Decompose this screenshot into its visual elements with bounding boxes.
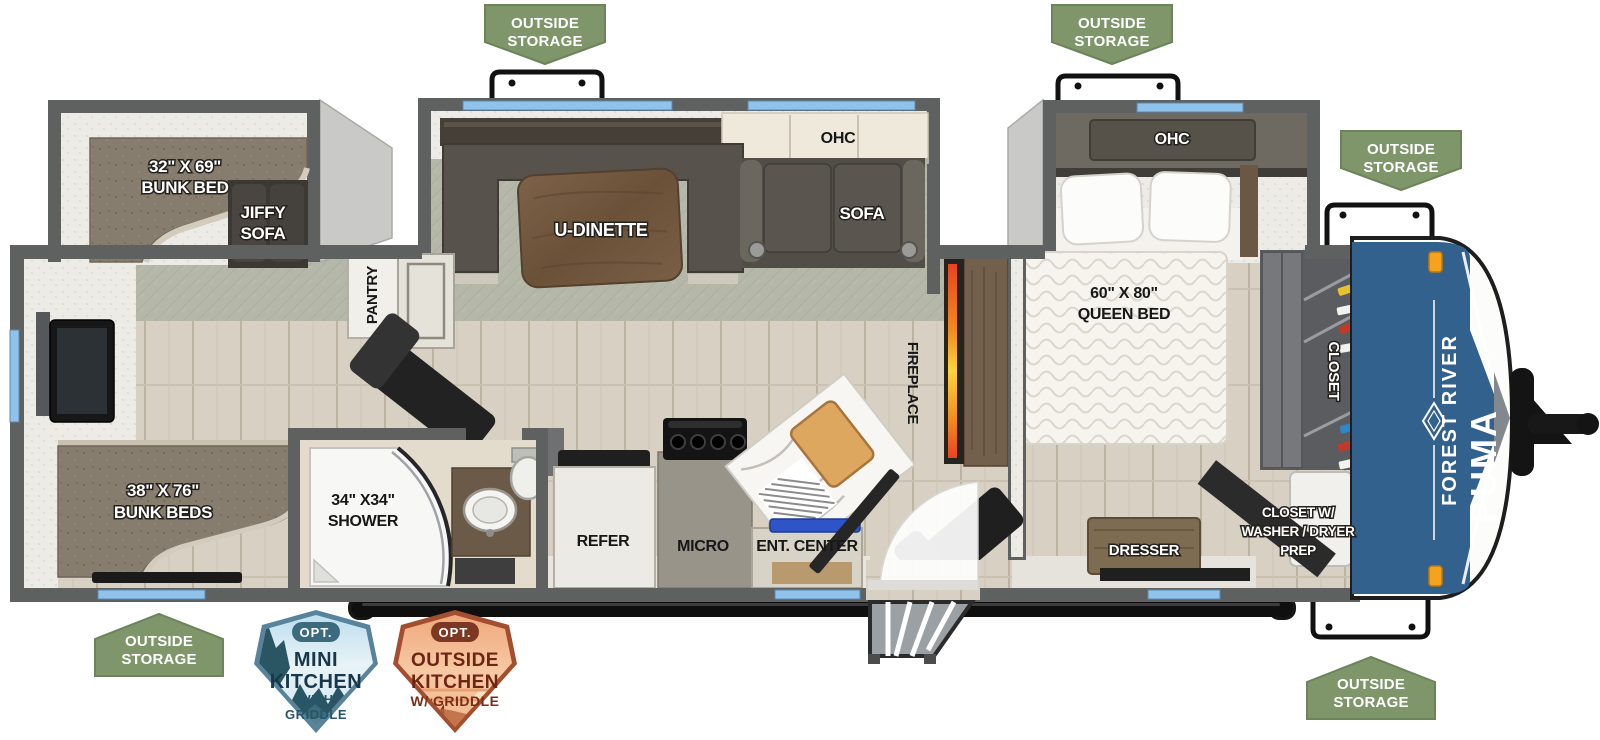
sofa-label: SOFA [839, 204, 884, 223]
queen-bed [1010, 252, 1227, 444]
micro-label: MICRO [677, 538, 729, 555]
pantry-label: PANTRY [364, 266, 381, 324]
fireplace-unit [944, 256, 1008, 466]
bed-side-wardrobe [1240, 165, 1258, 257]
ohc-dinette-label: OHC [821, 130, 856, 147]
model-label: PUMA [1463, 409, 1504, 523]
ohc-bedroom-label: OHC [1155, 131, 1190, 148]
storage-door-bracket-top-right [1058, 76, 1178, 104]
ent-center-label: ENT. CENTER [756, 538, 858, 555]
washer-dryer-label: PREP [1280, 543, 1316, 558]
storage-door-bracket-bottom-right [1313, 596, 1428, 637]
sofa [740, 158, 925, 268]
jiffy-sofa-label: JIFFY [241, 203, 287, 222]
bunk-beds-name-label: BUNK BEDS [114, 503, 212, 522]
mini-kitchen-label: WITH [298, 692, 333, 707]
refrigerator [554, 450, 655, 588]
badge-label: STORAGE [1333, 694, 1408, 711]
opt-mini-kitchen-badge: OPT. MINI KITCHEN WITH GRIDDLE [254, 610, 381, 733]
bunk-bed-size-label: 32" X 69" [149, 157, 221, 176]
refer-label: REFER [577, 533, 630, 550]
outside-kitchen-label: KITCHEN [411, 672, 499, 693]
front-closet [1260, 250, 1360, 470]
opt-outside-kitchen-badge: OPT. OUTSIDE KITCHEN W/ GRIDDLE [393, 610, 517, 733]
pillow-left [1060, 173, 1143, 245]
badge-label: STORAGE [1074, 33, 1149, 50]
marker-light-bottom [1429, 566, 1442, 586]
u-dinette-label: U-DINETTE [554, 220, 648, 240]
washer-dryer-label: WASHER / DRYER [1241, 524, 1355, 539]
badge-label: STORAGE [507, 33, 582, 50]
fireplace-label: FIREPLACE [904, 342, 921, 425]
bedroom-tv [1100, 568, 1250, 581]
badge-label: OUTSIDE [125, 633, 193, 650]
stove-microwave [658, 418, 752, 588]
badge-label: STORAGE [1363, 159, 1438, 176]
mini-kitchen-label: MINI [294, 649, 338, 671]
outside-kitchen-label: W/ GRIDDLE [411, 693, 500, 709]
opt-pill-label: OPT. [300, 625, 333, 640]
jiffy-sofa-label: SOFA [240, 224, 285, 243]
badge-label: OUTSIDE [1078, 15, 1146, 32]
dinette-slideout [418, 98, 940, 294]
queen-name-label: QUEEN BED [1078, 306, 1170, 323]
brand-label: FOREST RIVER [1439, 334, 1461, 506]
opt-pill-label: OPT. [439, 625, 472, 640]
mini-kitchen-label: GRIDDLE [285, 707, 347, 722]
badge-label: OUTSIDE [511, 15, 579, 32]
shower-name-label: SHOWER [328, 513, 399, 530]
bunk-bed-name-label: BUNK BED [141, 178, 228, 197]
entry-steps [868, 602, 972, 664]
bedroom-slideout [1008, 100, 1320, 263]
badge-label: STORAGE [121, 651, 196, 668]
floorplan-canvas: OUTSIDE STORAGE OUTSIDE STORAGE OUTSIDE … [0, 0, 1600, 740]
bunk-beds-size-label: 38" X 76" [127, 481, 199, 500]
marker-light-top [1429, 252, 1442, 272]
pillow-right [1149, 172, 1231, 243]
washer-dryer-label: CLOSET W/ [1262, 505, 1335, 520]
rear-tv [36, 312, 114, 422]
badge-label: OUTSIDE [1367, 141, 1435, 158]
closet-label: CLOSET [1325, 341, 1342, 400]
hitch [1510, 368, 1599, 476]
shower-size-label: 34" X34" [331, 492, 394, 509]
mini-kitchen-label: KITCHEN [270, 671, 362, 693]
rv-floorplan-image: OUTSIDE STORAGE OUTSIDE STORAGE OUTSIDE … [0, 0, 1600, 740]
dresser-label: DRESSER [1109, 542, 1180, 559]
outside-kitchen-label: OUTSIDE [411, 650, 499, 671]
queen-size-label: 60" X 80" [1090, 285, 1158, 302]
badge-label: OUTSIDE [1337, 676, 1405, 693]
